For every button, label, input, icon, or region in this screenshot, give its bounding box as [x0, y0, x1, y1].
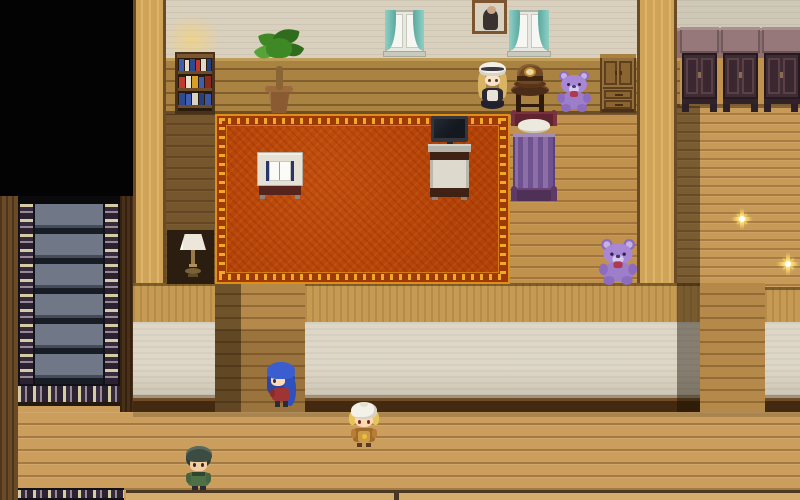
cabinet-base	[602, 109, 634, 112]
bed-post	[511, 186, 517, 201]
teddy-arm	[557, 93, 565, 103]
south-wall-wood-left	[133, 283, 215, 322]
npc-hair-top	[186, 446, 212, 462]
open-book	[266, 161, 294, 181]
center-wall-shadow	[677, 106, 700, 412]
table-leg	[260, 195, 265, 199]
stair-bottom-edge	[18, 402, 120, 406]
doll-apron	[487, 90, 498, 101]
portrait-face	[487, 6, 496, 14]
wardrobe-knobs	[698, 72, 701, 78]
npc-foot	[366, 443, 371, 447]
doll-eye	[488, 79, 491, 82]
hat-badge	[524, 67, 536, 77]
desk-base	[430, 188, 469, 197]
npc-turban-knot	[360, 402, 368, 407]
framed-portrait	[472, 0, 507, 34]
bookshelf[interactable]	[175, 52, 215, 114]
desk-top	[428, 144, 471, 152]
npc-green-hair-man[interactable]	[182, 446, 215, 492]
cabinet-knob	[620, 71, 622, 75]
pot-body	[267, 92, 291, 113]
teddy-eye	[567, 83, 570, 86]
bookshelf-row3	[179, 93, 211, 105]
npc-eye	[358, 420, 361, 424]
lamp-foot	[188, 274, 198, 277]
teddy-leg	[621, 276, 632, 285]
wardrobe-foot	[710, 104, 717, 112]
table-leg	[295, 195, 300, 199]
npc-white-turban[interactable]	[348, 402, 380, 448]
wardrobe-foot	[791, 104, 798, 112]
wardrobe-door-panel	[742, 58, 754, 94]
hallway-wall-shadow	[133, 412, 800, 417]
potted-plant[interactable]	[256, 28, 302, 114]
teddy-leg	[577, 104, 587, 112]
sparkle-core	[739, 216, 745, 222]
wardrobe-knobs	[739, 72, 742, 78]
cabinet-drawer	[604, 90, 632, 99]
bookshelf-top	[177, 54, 213, 58]
reading-table-open-book[interactable]	[257, 152, 303, 199]
stair-border-right	[103, 204, 120, 384]
cabinet-top	[600, 54, 636, 58]
npc-eye	[367, 420, 370, 424]
wardrobe-2[interactable]	[721, 27, 760, 112]
cabinet-shelf-line	[603, 87, 633, 89]
south-wall-wood-right	[765, 287, 800, 322]
wardrobe-doors	[764, 53, 800, 99]
void-area	[0, 0, 133, 196]
wardrobe-knobs	[780, 72, 783, 78]
lower-room-wall-notch	[394, 490, 399, 500]
sparkle-effect	[731, 208, 753, 230]
window-2	[509, 10, 549, 57]
npc-arm	[372, 429, 377, 438]
wardrobe-door-panel	[768, 58, 780, 94]
teddy-bear-floor[interactable]	[599, 239, 637, 285]
tv-on-desk[interactable]	[428, 113, 471, 200]
wardrobe-doors	[682, 53, 717, 99]
south-wall-wood-center	[305, 283, 700, 322]
npc-blue-long-hair[interactable]	[264, 362, 298, 408]
wardrobe-door-panel	[727, 58, 739, 94]
teddy-nose	[616, 255, 620, 258]
doll-gothic-blonde[interactable]	[476, 62, 509, 112]
table-lamp[interactable]	[180, 234, 206, 280]
wardrobe-door-panel	[783, 58, 796, 94]
doorway-passage-right	[700, 283, 765, 412]
game-viewport[interactable]	[0, 0, 800, 500]
teddy-eye	[610, 252, 613, 255]
book-spine	[279, 162, 280, 180]
desk-shelf	[430, 152, 469, 160]
baseboard-right	[765, 398, 800, 412]
wardrobe-foot	[751, 104, 758, 112]
npc-foot	[357, 443, 362, 447]
desk-foot	[432, 197, 438, 200]
drawer-handle	[615, 94, 623, 96]
npc-arm	[186, 473, 191, 483]
doll-eye	[495, 79, 498, 82]
bookshelf-shelf2	[178, 88, 212, 91]
hallway-floor	[0, 412, 800, 500]
doll-bonnet-band	[481, 67, 504, 71]
wardrobe-top	[680, 27, 719, 53]
stair-steps	[35, 204, 103, 384]
wardrobe-doors	[723, 53, 758, 99]
south-wall-plaster-right	[765, 322, 800, 398]
wardrobe-foot	[682, 104, 689, 112]
npc-hair-top	[267, 362, 295, 379]
carpet-ornament-bottom	[219, 274, 506, 280]
teddy-bear-wall[interactable]	[557, 71, 591, 112]
window-1	[385, 10, 424, 57]
npc-eye	[273, 379, 276, 383]
npc-leg	[275, 401, 280, 407]
wardrobe-room-wall	[677, 0, 800, 28]
npc-collar	[192, 472, 205, 476]
npc-eye	[193, 463, 196, 467]
npc-leg	[283, 401, 288, 407]
plant-trunk	[276, 66, 283, 90]
carpet-ornament-right	[500, 118, 506, 280]
teddy-bow	[570, 91, 578, 97]
wardrobe-top	[721, 27, 760, 53]
bed-pillow	[518, 119, 550, 133]
stair-bottom-border	[18, 384, 120, 404]
left-wall-strip	[133, 0, 166, 284]
npc-arm	[206, 473, 211, 483]
bookshelf-shelf1	[178, 71, 212, 74]
staircase[interactable]	[18, 204, 120, 384]
stair-border-left	[18, 204, 35, 384]
desk-front	[430, 160, 469, 188]
sparkle-core	[785, 261, 791, 267]
lower-room-floor-sliver	[126, 493, 800, 500]
bed-blanket	[513, 133, 555, 188]
bed-post	[551, 186, 557, 201]
center-wall-strip	[637, 0, 677, 284]
purple-bed[interactable]	[511, 110, 557, 201]
wardrobe-1[interactable]	[680, 27, 719, 112]
wardrobe-door-panel	[701, 58, 713, 94]
teddy-arm	[583, 93, 591, 103]
south-wall-plaster-center	[305, 322, 700, 398]
bookshelf-row1	[179, 59, 211, 71]
cabinet-knob	[615, 71, 617, 75]
plant-leaf	[266, 38, 292, 58]
wardrobe-foot	[723, 104, 730, 112]
table-crossbar	[519, 104, 541, 107]
hat-on-round-table[interactable]	[511, 64, 549, 112]
lamp-collar	[189, 264, 197, 267]
bookshelf-row2	[179, 76, 211, 88]
wardrobe-foot	[764, 104, 771, 112]
stair-top-edge	[18, 196, 120, 204]
lamp-shade	[180, 234, 206, 250]
teddy-eye	[623, 252, 626, 255]
stair-rail-right	[120, 196, 133, 412]
teddy-arm	[599, 264, 608, 275]
doorway-left-shadow	[215, 283, 241, 412]
lower-stair-border	[18, 488, 124, 500]
south-wall-plaster-left	[133, 322, 215, 398]
stair-rail-left	[0, 196, 18, 500]
teddy-arm	[628, 264, 637, 275]
cabinet-drawer	[604, 100, 632, 109]
desk-foot	[461, 197, 467, 200]
table-apron	[259, 186, 301, 195]
wardrobe-3[interactable]	[762, 27, 800, 112]
baseboard-left	[133, 398, 215, 412]
npc-arm	[270, 389, 275, 397]
npc-arm	[351, 429, 356, 438]
teddy-leg	[603, 276, 614, 285]
tv-screen	[434, 119, 465, 138]
teddy-leg	[561, 104, 571, 112]
wardrobe-door-panel	[686, 58, 698, 94]
teddy-eye	[578, 83, 581, 86]
bed-footboard	[513, 188, 555, 201]
carpet-ornament-left	[219, 118, 225, 280]
sparkle-effect	[776, 252, 800, 276]
npc-eye	[201, 463, 204, 467]
teddy-nose	[572, 85, 576, 88]
bookshelf-shelf3	[178, 105, 212, 108]
drawer-handle	[615, 104, 623, 106]
window-sill	[383, 51, 426, 57]
small-cabinet[interactable]	[600, 54, 636, 113]
window-sill	[507, 51, 551, 57]
wardrobe-top	[762, 27, 800, 53]
teddy-bow	[614, 261, 623, 268]
npc-emblem	[362, 434, 367, 439]
